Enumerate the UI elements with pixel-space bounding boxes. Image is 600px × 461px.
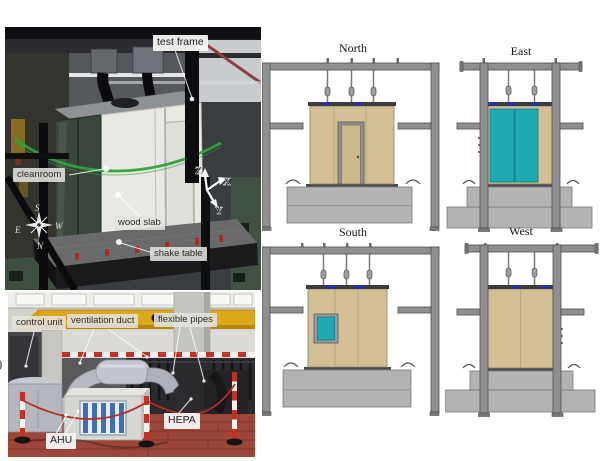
skid-support [568, 365, 580, 369]
hepa-unit [204, 370, 248, 414]
frame-stub-beam [561, 309, 584, 315]
shake-table-base [445, 371, 595, 412]
pass-window-glass [318, 317, 335, 340]
axis-x-label: X [223, 176, 231, 188]
frame-stub-beam [457, 309, 480, 315]
connector [541, 286, 550, 289]
label-test-frame: test frame [153, 35, 208, 51]
label-control-unit: control unit [12, 316, 66, 330]
photo-ahu-ventilation: control unit ventilation duct flexible p… [8, 292, 255, 457]
frame-column [553, 245, 561, 413]
shake-table-base [283, 370, 411, 407]
label-ventilation-duct: ventilation duct [67, 314, 138, 328]
cleanroom-elevation [304, 285, 391, 370]
connector [511, 286, 520, 289]
photo-cleanroom-shake-table: Z X Y S W E N test frame cleanroom wood … [5, 27, 261, 290]
axis-z-label: Z [195, 165, 202, 177]
skid-support [567, 181, 579, 185]
skid-support [463, 181, 475, 185]
connector [353, 103, 362, 106]
roof-edge [306, 285, 389, 289]
shake-table-base [447, 187, 592, 228]
frame-column [262, 63, 270, 227]
frame-stub-beam [270, 123, 303, 129]
label-wood-slab: wood slab [114, 216, 165, 230]
title-west-elevation: West [445, 225, 597, 238]
hanger-rods [325, 70, 376, 102]
title-south-elevation: South [262, 226, 444, 239]
frame-top-beam [262, 247, 439, 254]
frame-column [480, 245, 488, 413]
frame-stub-beam [398, 123, 431, 129]
frame-column [262, 247, 270, 412]
connector [321, 103, 330, 106]
frame-column [552, 63, 560, 228]
connector [354, 286, 363, 289]
figure-label-fragment: ) [0, 356, 2, 372]
frame-stub-beam [270, 307, 303, 313]
glass-divider [514, 109, 516, 182]
cleanroom-elevation [486, 285, 555, 371]
frame-top-beam [262, 63, 439, 70]
silver-box-left [8, 377, 62, 432]
roof-duct [103, 73, 109, 103]
frame-stub-beam [457, 123, 480, 129]
cleanroom-door [342, 125, 361, 184]
shake-table-base [287, 187, 412, 223]
roof-duct [147, 73, 151, 99]
hanger-rods [321, 254, 372, 285]
compass-n-label: N [36, 241, 44, 251]
frame-top-beam [460, 63, 582, 70]
label-ahu: AHU [46, 433, 76, 449]
connector [326, 286, 335, 289]
cleanroom-elevation [486, 102, 555, 187]
frame-stub-beam [560, 123, 583, 129]
window-band [8, 292, 255, 308]
skid-support [406, 180, 420, 184]
figure-panel: Z X Y S W E N test frame cleanroom wood … [0, 0, 600, 461]
skid-support [463, 365, 475, 369]
skid-support [284, 363, 298, 367]
connector [532, 103, 540, 106]
label-cleanroom: cleanroom [13, 168, 65, 182]
title-east-elevation: East [445, 45, 597, 58]
north-elevation-diagram [262, 58, 444, 235]
frame-stub-beam [398, 307, 431, 313]
frame-column [431, 247, 439, 412]
door-handle [357, 156, 359, 158]
label-hepa: HEPA [164, 413, 200, 429]
hanger-rods [506, 252, 537, 285]
skid-support [401, 363, 415, 367]
frame-column [480, 63, 488, 228]
connector [490, 103, 498, 106]
compass-s-label: S [35, 203, 40, 213]
south-elevation-diagram [262, 243, 444, 420]
skid-support [286, 180, 300, 184]
photo-a-scene: Z X Y S W E N [5, 27, 261, 290]
east-elevation-diagram [445, 58, 597, 235]
title-north-elevation: North [262, 42, 444, 55]
connector [507, 103, 515, 106]
hanger-rods [506, 70, 537, 102]
cleanroom-elevation [306, 102, 398, 187]
west-elevation-diagram [445, 243, 600, 420]
label-flexible-pipes: flexible pipes [154, 313, 217, 327]
compass-e-label: E [14, 225, 21, 235]
axis-y-label: Y [215, 205, 223, 217]
label-shake-table: shake table [150, 247, 207, 261]
frame-column [431, 63, 439, 227]
barrier-tape-wall [62, 352, 255, 357]
